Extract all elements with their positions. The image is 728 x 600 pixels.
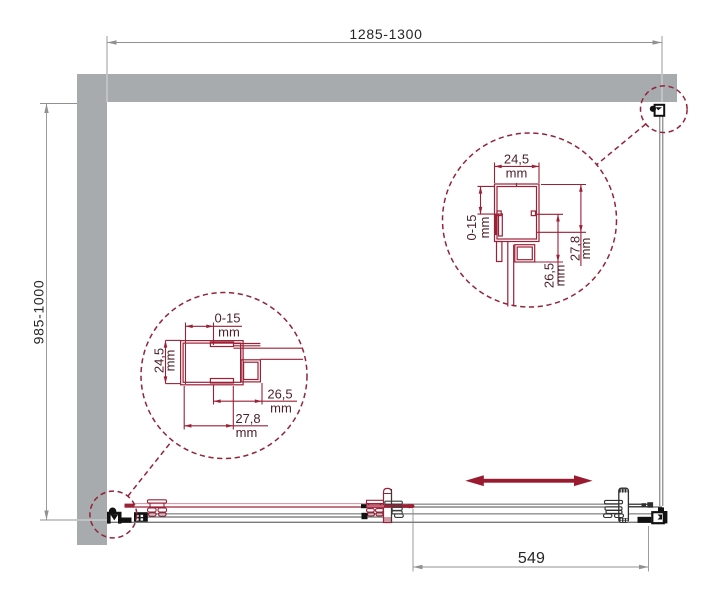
svg-text:24,5: 24,5 [504,152,529,167]
svg-text:549: 549 [518,550,545,567]
svg-text:985-1000: 985-1000 [30,280,46,345]
svg-text:mm: mm [218,325,240,340]
svg-text:mm: mm [506,166,528,181]
svg-text:mm: mm [163,350,178,372]
svg-text:mm: mm [553,265,568,287]
svg-text:mm: mm [477,217,492,239]
svg-text:1285-1300: 1285-1300 [349,26,422,42]
svg-text:mm: mm [578,238,593,260]
svg-text:27,8: 27,8 [235,411,260,426]
svg-text:mm: mm [270,401,292,416]
svg-text:mm: mm [236,425,258,440]
svg-text:0-15: 0-15 [214,311,240,326]
svg-text:26,5: 26,5 [267,387,292,402]
